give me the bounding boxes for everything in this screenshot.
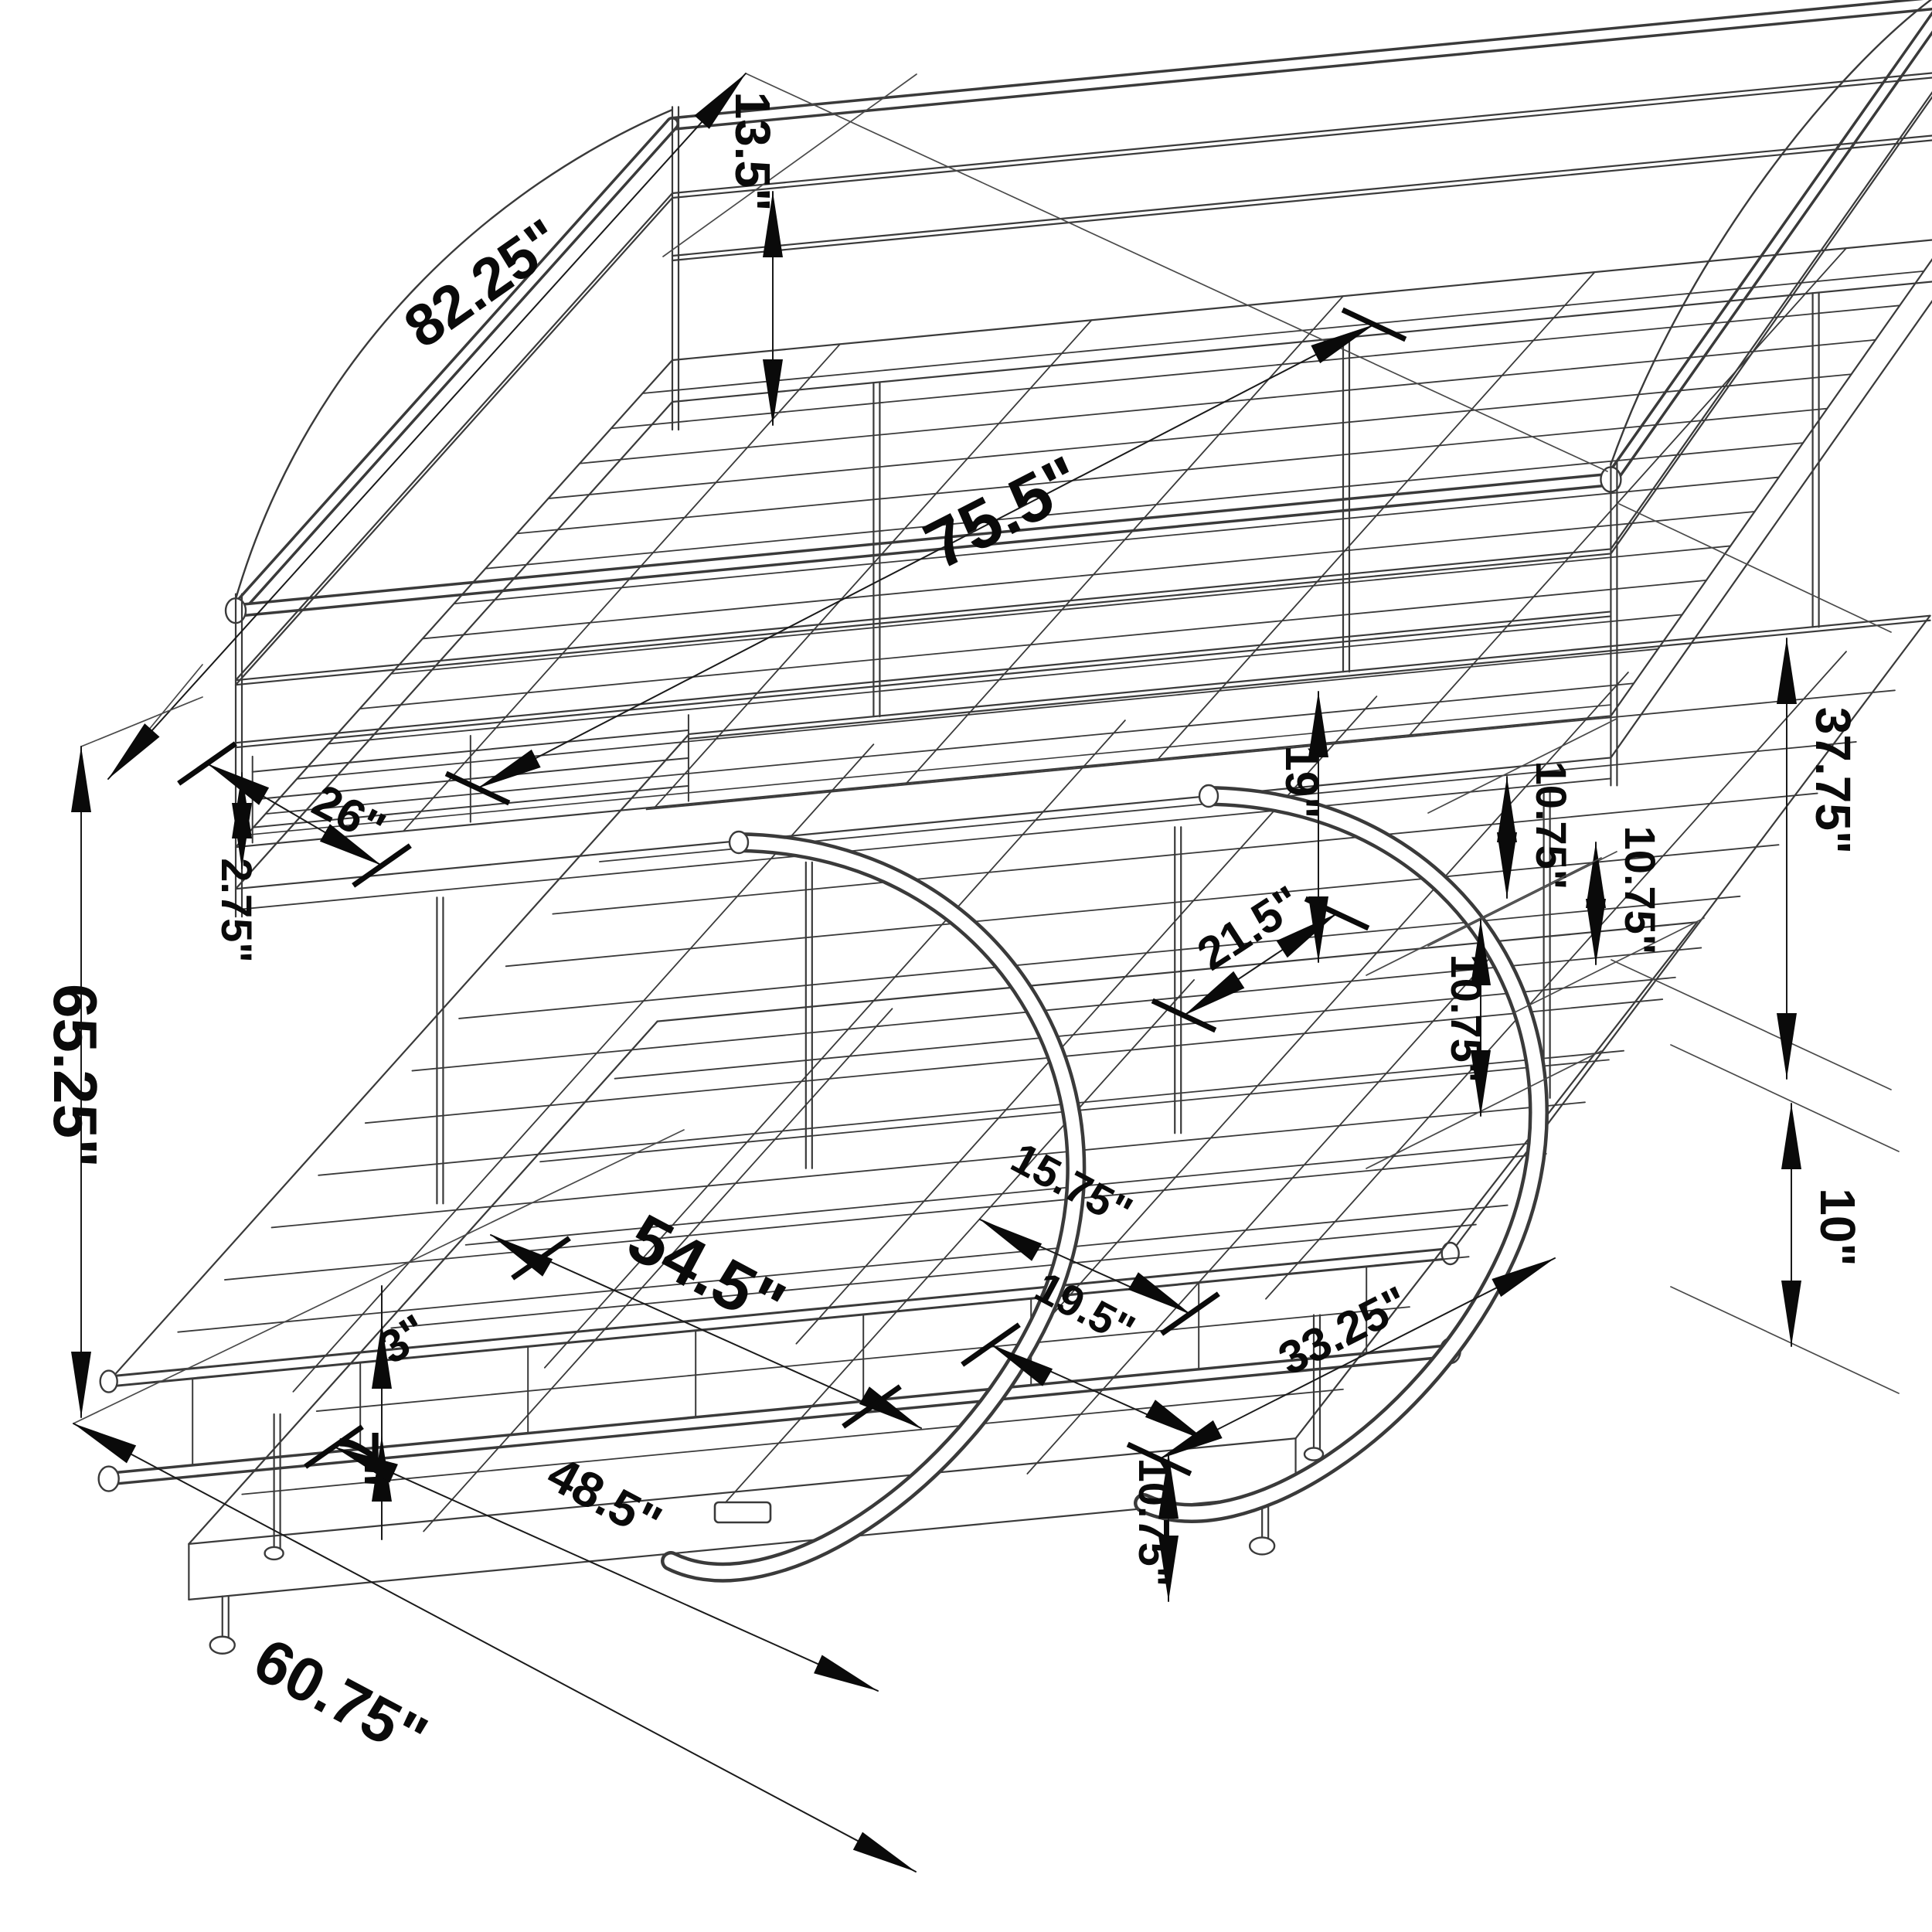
dim-label-head_rail_length: 26" (304, 774, 394, 855)
dim-label-bunk_clearance: 19" (1276, 745, 1328, 818)
dim-label-lower_frame_width: 33.25" (1270, 1276, 1417, 1385)
dim-label-gap_upper_right: 10.75" (1527, 761, 1576, 890)
dim-label-upper_bed_rail_height: 37.75" (1805, 707, 1861, 855)
dim-label-lower_section_width: 19.5" (1028, 1262, 1143, 1354)
dim-label-upper_interior_length: 75.5" (913, 440, 1094, 583)
isometric-bed-sketch: 82.25"13.5"75.5"19"26"2.75"65.25"37.75"1… (0, 0, 1932, 1932)
trundle-handle (715, 1502, 770, 1522)
dim-label-overall_width: 60.75" (243, 1625, 438, 1772)
upper-bunk (226, 0, 1932, 917)
dim-label-gap_bottom: 10.75" (1130, 1458, 1179, 1587)
dimension-annotations: 82.25"13.5"75.5"19"26"2.75"65.25"37.75"1… (41, 66, 1899, 1880)
dim-label-foot_clearance: 10" (1810, 1188, 1866, 1267)
dim-label-overall_height: 65.25" (41, 984, 110, 1168)
lower-bed (99, 616, 1930, 1560)
dim-label-trundle_width: 48.5" (539, 1445, 671, 1550)
bunk-bed-dimension-drawing: 82.25"13.5"75.5"19"26"2.75"65.25"37.75"1… (0, 0, 1932, 1932)
dim-label-trundle_height: 7" (328, 1430, 389, 1488)
dim-label-gap_lower_right: 10.75" (1616, 826, 1665, 955)
dim-label-upper_rail_height: 13.5" (725, 92, 781, 212)
dim-label-rail_gap: 2.75" (213, 858, 261, 963)
dim-label-gap_mid: 10.75" (1442, 954, 1491, 1083)
